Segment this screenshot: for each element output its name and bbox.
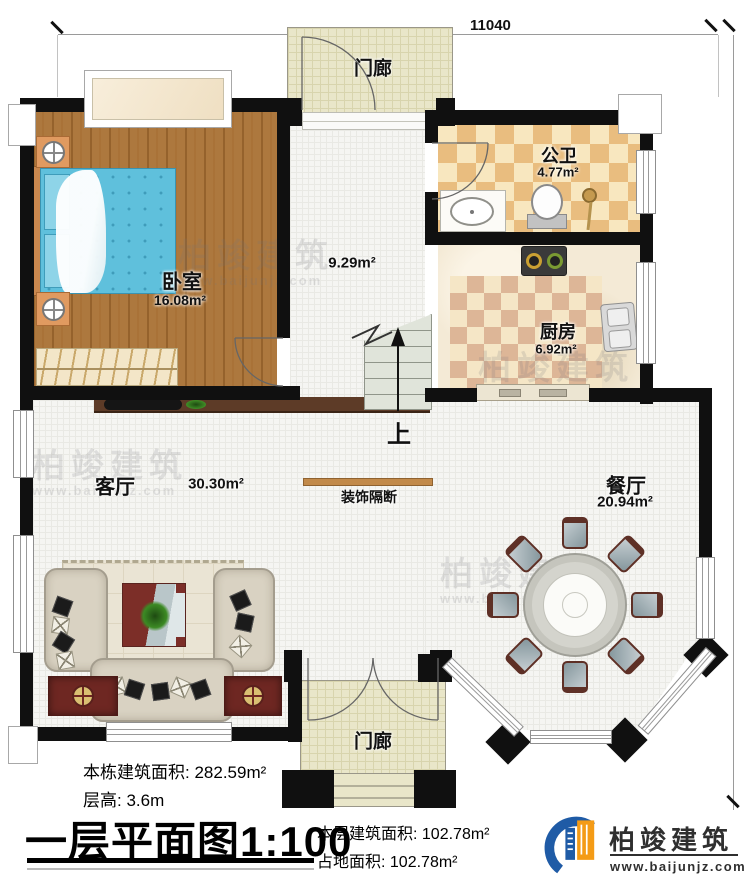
nightstand — [36, 292, 70, 326]
coffee-table — [122, 583, 186, 647]
window-glass — [92, 78, 224, 120]
wall — [699, 390, 712, 560]
extension-line-top-right — [718, 35, 719, 97]
stove-icon — [521, 246, 567, 276]
kitchen-sink-icon — [600, 302, 638, 353]
wall — [20, 386, 300, 400]
hallway-area: 9.29m² — [328, 255, 376, 272]
counter-item — [499, 389, 521, 397]
accent-rug — [48, 676, 118, 716]
dining-chair — [562, 661, 588, 693]
living-label: 客厅 — [95, 471, 135, 500]
window — [106, 722, 232, 742]
table-lamp-icon — [42, 141, 65, 164]
dining-chair — [562, 517, 588, 549]
sink-bowl — [606, 307, 629, 327]
floor-area-label: 本层建筑面积: — [317, 826, 417, 843]
dining-chair — [631, 592, 663, 618]
counter-item — [539, 389, 567, 397]
toilet-icon — [531, 184, 563, 220]
stairs-up-label: 上 — [387, 415, 411, 450]
porch-bottom-label: 门廊 — [354, 727, 392, 754]
accent-rug — [224, 676, 282, 716]
bay-window — [530, 730, 612, 744]
burner-icon — [547, 253, 563, 269]
dimension-line-right — [733, 35, 734, 810]
floor-area-value: 102.78m² — [422, 826, 490, 843]
window — [636, 262, 656, 364]
window — [13, 535, 34, 653]
living-area: 30.30m² — [188, 476, 244, 493]
burner-icon — [526, 253, 542, 269]
porch-top-label: 门廊 — [354, 54, 392, 81]
kitchen-label: 厨房 — [540, 318, 576, 344]
wall — [425, 388, 477, 402]
wall — [425, 232, 653, 245]
bedroom-area: 16.08m² — [154, 292, 206, 308]
bathroom-counter — [440, 190, 506, 232]
brand-logo: 柏竣建筑 www.baijunjz.com — [543, 814, 743, 878]
title-underline-thin — [27, 868, 314, 870]
wall — [425, 110, 438, 143]
brand-website: www.baijunjz.com — [610, 859, 746, 874]
cushion — [151, 682, 170, 701]
plant-icon — [140, 601, 170, 631]
kitchen-area: 6.92m² — [535, 342, 576, 357]
floor-area-row: 本层建筑面积: 102.78m² — [317, 820, 490, 844]
table-lamp-icon — [42, 298, 65, 321]
bedroom-label: 卧室 — [162, 266, 202, 295]
extension-line-top-left — [57, 35, 58, 97]
brand-rule — [610, 854, 738, 856]
dimension-width-label: 11040 — [470, 17, 511, 34]
land-area-row: 占地面积: 102.78m² — [317, 848, 458, 872]
corner-deco — [618, 94, 662, 134]
building-area-row: 本栋建筑面积: 282.59m² — [83, 758, 266, 783]
bed-blanket — [56, 170, 106, 293]
corner-deco — [8, 726, 38, 764]
wall-stub — [283, 98, 302, 126]
dining-chair — [487, 592, 519, 618]
nightstand — [36, 136, 70, 168]
wall — [589, 388, 712, 402]
table-corner — [176, 637, 185, 646]
compass-motif — [242, 685, 264, 707]
building-area-value: 282.59m² — [194, 763, 266, 782]
land-area-label: 占地面积: — [317, 854, 385, 871]
cushion — [56, 651, 76, 671]
entry-steps — [302, 112, 436, 130]
porch-pillar — [282, 770, 334, 808]
dim-tick — [50, 21, 63, 34]
table-corner — [176, 584, 185, 593]
bay-pillar — [418, 654, 446, 682]
dining-area: 20.94m² — [597, 494, 653, 511]
brand-name: 柏竣建筑 — [609, 820, 733, 857]
porch-pillar — [414, 770, 456, 808]
window — [696, 557, 715, 639]
dining-table — [523, 553, 627, 657]
kitchen-counter — [476, 384, 590, 401]
floor-drain-icon — [582, 188, 597, 203]
building-area-label: 本栋建筑面积: — [83, 763, 190, 782]
dim-tick — [722, 19, 735, 32]
kitchen-tile-area — [450, 276, 602, 388]
bedroom-bay-window — [84, 70, 232, 128]
tv-icon — [104, 399, 182, 410]
lazy-susan — [562, 592, 588, 618]
logo-building-orange — [577, 820, 594, 859]
sink-bowl — [608, 329, 631, 349]
land-area-value: 102.78m² — [390, 854, 458, 871]
compass-motif — [72, 685, 94, 707]
porch-pillar — [284, 650, 302, 682]
wall — [640, 212, 653, 264]
cushion — [234, 612, 254, 632]
partition-label: 装饰隔断 — [341, 487, 397, 507]
wardrobe — [36, 348, 178, 386]
sink-drain-icon — [470, 210, 474, 214]
brand-logo-icon — [543, 814, 607, 878]
title-underline — [27, 858, 314, 863]
decorative-partition-bar — [303, 478, 433, 486]
window — [13, 410, 34, 478]
dim-tick — [704, 19, 717, 32]
corner-deco — [8, 104, 36, 146]
window — [636, 150, 656, 214]
bathroom-area: 4.77m² — [537, 165, 578, 180]
plant-icon — [186, 400, 206, 409]
wall — [277, 98, 290, 338]
